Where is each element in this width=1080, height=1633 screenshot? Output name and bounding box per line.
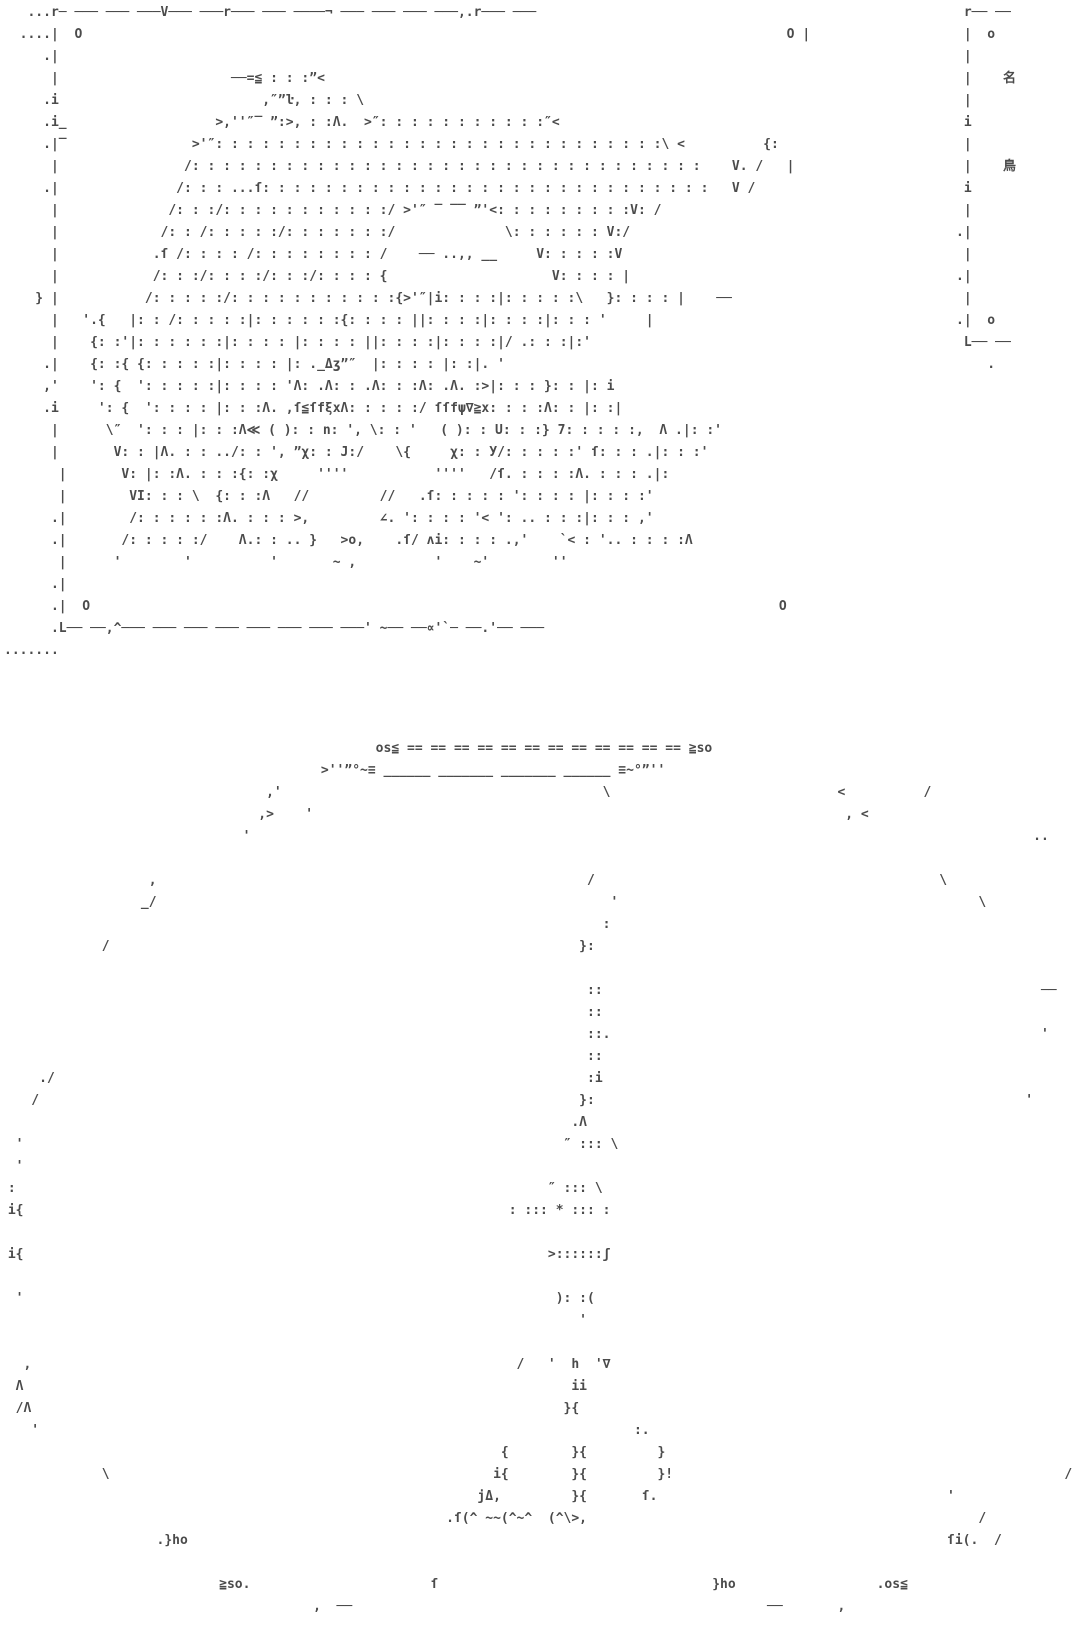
ascii-art-page: { "page": { "background": "#ffffff", "in… [0, 0, 1080, 1633]
ascii-art-dome: os≦ == == == == == == == == == == == == … [0, 738, 1080, 1618]
ascii-art-portrait-frame: ...r─ ─── ─── ───V─── ───r─── ─── ────¬ … [4, 2, 810, 662]
ascii-art-side-frame-clipped: r── ── | o | | 名 | i | | 鳥 i | .| | .| |… [956, 2, 1080, 376]
